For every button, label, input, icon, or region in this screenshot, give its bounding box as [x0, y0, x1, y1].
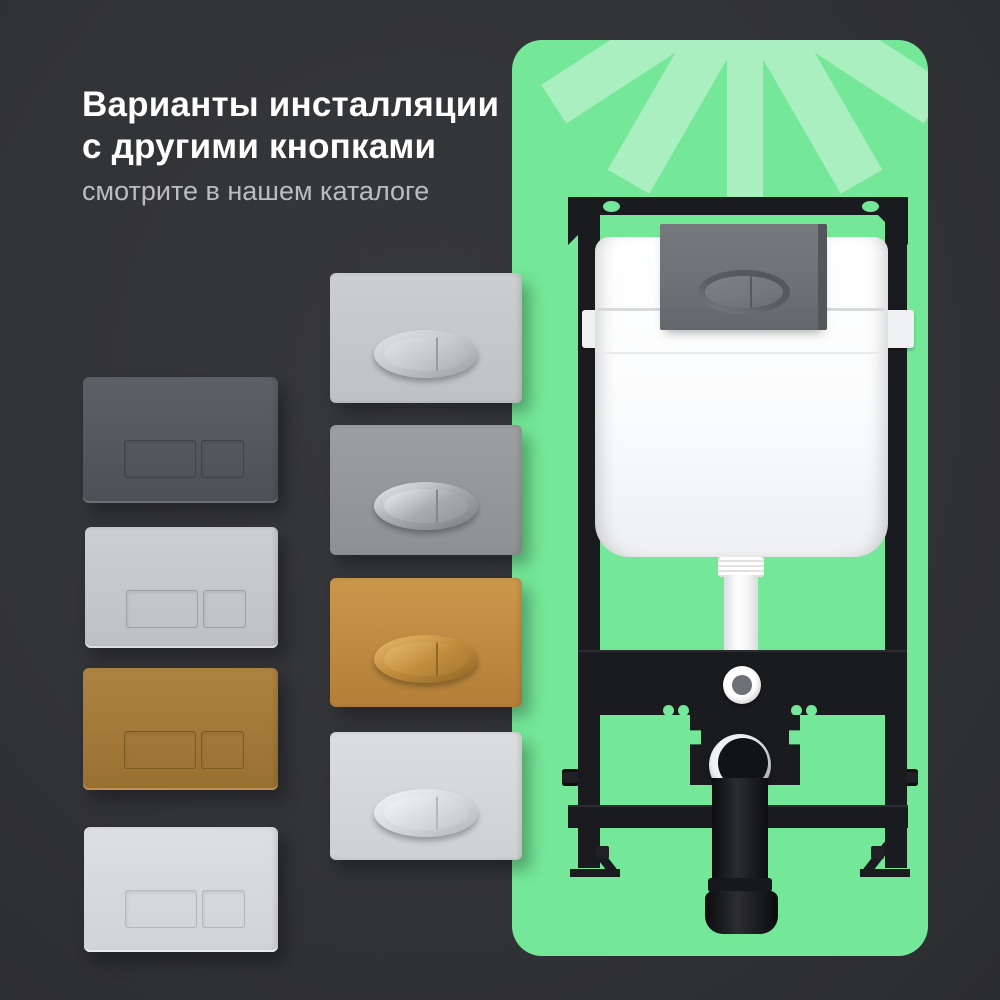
- title-line-1: Варианты инсталляции: [82, 84, 512, 126]
- oval-flush-button: [384, 337, 468, 371]
- flush-button-large: [124, 440, 196, 478]
- flush-button-small: [202, 890, 245, 928]
- flush-plate-bronze-square: [83, 668, 278, 790]
- flush-button-large: [124, 731, 196, 769]
- flush-button-large: [125, 890, 197, 928]
- fixing-hole: [663, 705, 674, 716]
- flush-button-divider: [436, 489, 438, 523]
- oval-button-ring: [374, 482, 478, 530]
- oval-button-ring: [374, 789, 478, 837]
- cistern-body-line: [602, 352, 881, 354]
- title-line-2: с другими кнопками: [82, 126, 512, 168]
- flush-plate-white-oval: [330, 732, 522, 860]
- installed-flush-plate: [660, 224, 827, 330]
- light-ray-icon: [727, 40, 763, 206]
- promo-header: Варианты инсталляции с другими кнопками …: [82, 84, 512, 207]
- water-inlet-cap: [732, 675, 752, 695]
- flush-pipe-coupling: [718, 557, 764, 577]
- wall-anchor-bolt-left: [562, 769, 579, 786]
- installed-flush-plate-edge: [818, 224, 827, 330]
- flush-button-small: [203, 590, 246, 628]
- flush-plate-light-gray-square: [85, 527, 278, 648]
- flush-button-divider: [436, 796, 438, 830]
- installed-oval-flush-button: [705, 276, 783, 308]
- fixing-hole: [791, 705, 802, 716]
- flush-plate-gold-oval: [330, 578, 522, 707]
- oval-flush-button: [384, 642, 468, 676]
- foot-left: [570, 869, 620, 877]
- fixing-hole: [678, 705, 689, 716]
- flush-button-divider: [436, 642, 438, 676]
- promo-panel: [512, 40, 928, 956]
- leg-adjuster-right: [871, 846, 884, 859]
- flush-button-small: [201, 731, 244, 769]
- foot-right: [860, 869, 910, 877]
- flush-plate-dark-gray-square: [83, 377, 278, 503]
- installed-oval-button-ring: [698, 270, 790, 314]
- flush-button-divider: [436, 337, 438, 371]
- flush-button-small: [201, 440, 244, 478]
- oval-flush-button: [384, 796, 468, 830]
- fixing-hole: [806, 705, 817, 716]
- flush-button-large: [126, 590, 198, 628]
- oval-flush-button: [384, 489, 468, 523]
- page-background: { "header": { "title_line1": "Варианты и…: [0, 0, 1000, 1000]
- mounting-hole-right: [862, 201, 879, 212]
- page-title: Варианты инсталляции с другими кнопками: [82, 84, 512, 168]
- drain-pipe: [712, 778, 768, 880]
- page-subtitle: смотрите в нашем каталоге: [82, 175, 512, 207]
- flush-plate-white-square: [84, 827, 278, 952]
- oval-button-ring: [374, 330, 478, 378]
- flush-plate-gray-oval: [330, 425, 522, 555]
- leg-adjuster-left: [596, 846, 609, 859]
- mounting-hole-left: [603, 201, 620, 212]
- oval-button-ring: [374, 635, 478, 683]
- drain-pipe-step: [708, 878, 772, 892]
- flush-plate-silver-oval: [330, 273, 522, 403]
- flush-pipe: [724, 575, 758, 652]
- drain-pipe-collar: [705, 891, 778, 934]
- flush-button-divider: [750, 276, 752, 308]
